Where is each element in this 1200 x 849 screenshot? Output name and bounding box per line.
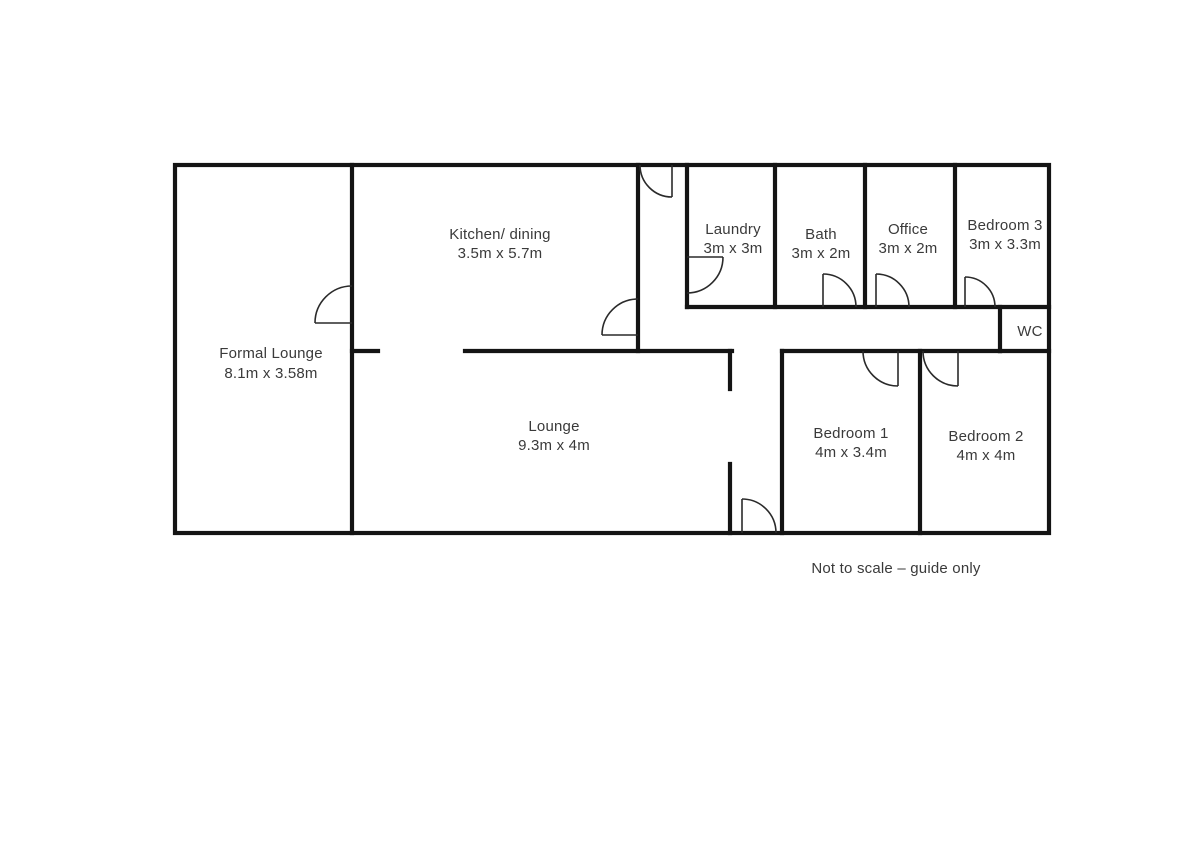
room-label-kitchen-dining: Kitchen/ dining xyxy=(449,226,550,243)
room-dims-formal-lounge: 8.1m x 3.58m xyxy=(224,365,317,382)
room-dims-laundry: 3m x 3m xyxy=(704,240,763,257)
entry-door-arc xyxy=(640,165,672,197)
bedroom2-door-arc xyxy=(923,351,958,386)
room-dims-lounge: 9.3m x 4m xyxy=(518,437,590,454)
room-label-bedroom-1: Bedroom 1 xyxy=(813,425,888,442)
bedroom3-door-arc xyxy=(965,277,995,307)
scale-note: Not to scale – guide only xyxy=(811,560,981,577)
room-label-office: Office xyxy=(888,221,928,238)
back-door-arc xyxy=(742,499,776,533)
floor-plan-page: Formal Lounge 8.1m x 3.58m Kitchen/ dini… xyxy=(0,0,1200,849)
room-label-bath: Bath xyxy=(805,226,837,243)
room-label-lounge: Lounge xyxy=(528,418,579,435)
room-dims-bedroom-3: 3m x 3.3m xyxy=(969,236,1041,253)
room-label-wc: WC xyxy=(1017,323,1042,340)
kitchen-door-arc xyxy=(602,299,638,335)
room-label-bedroom-3: Bedroom 3 xyxy=(967,217,1042,234)
office-door-arc xyxy=(876,274,909,307)
laundry-door-arc xyxy=(687,257,723,293)
room-dims-kitchen-dining: 3.5m x 5.7m xyxy=(458,245,543,262)
room-dims-bedroom-2: 4m x 4m xyxy=(957,447,1016,464)
floor-plan-svg: Formal Lounge 8.1m x 3.58m Kitchen/ dini… xyxy=(0,0,1200,849)
room-dims-office: 3m x 2m xyxy=(879,240,938,257)
room-label-bedroom-2: Bedroom 2 xyxy=(948,428,1023,445)
room-dims-bath: 3m x 2m xyxy=(792,245,851,262)
formal-lounge-door-arc xyxy=(315,286,352,323)
room-label-laundry: Laundry xyxy=(705,221,761,238)
room-label-formal-lounge: Formal Lounge xyxy=(219,345,323,362)
room-dims-bedroom-1: 4m x 3.4m xyxy=(815,444,887,461)
bedroom1-door-arc xyxy=(863,351,898,386)
bath-door-arc xyxy=(823,274,856,307)
